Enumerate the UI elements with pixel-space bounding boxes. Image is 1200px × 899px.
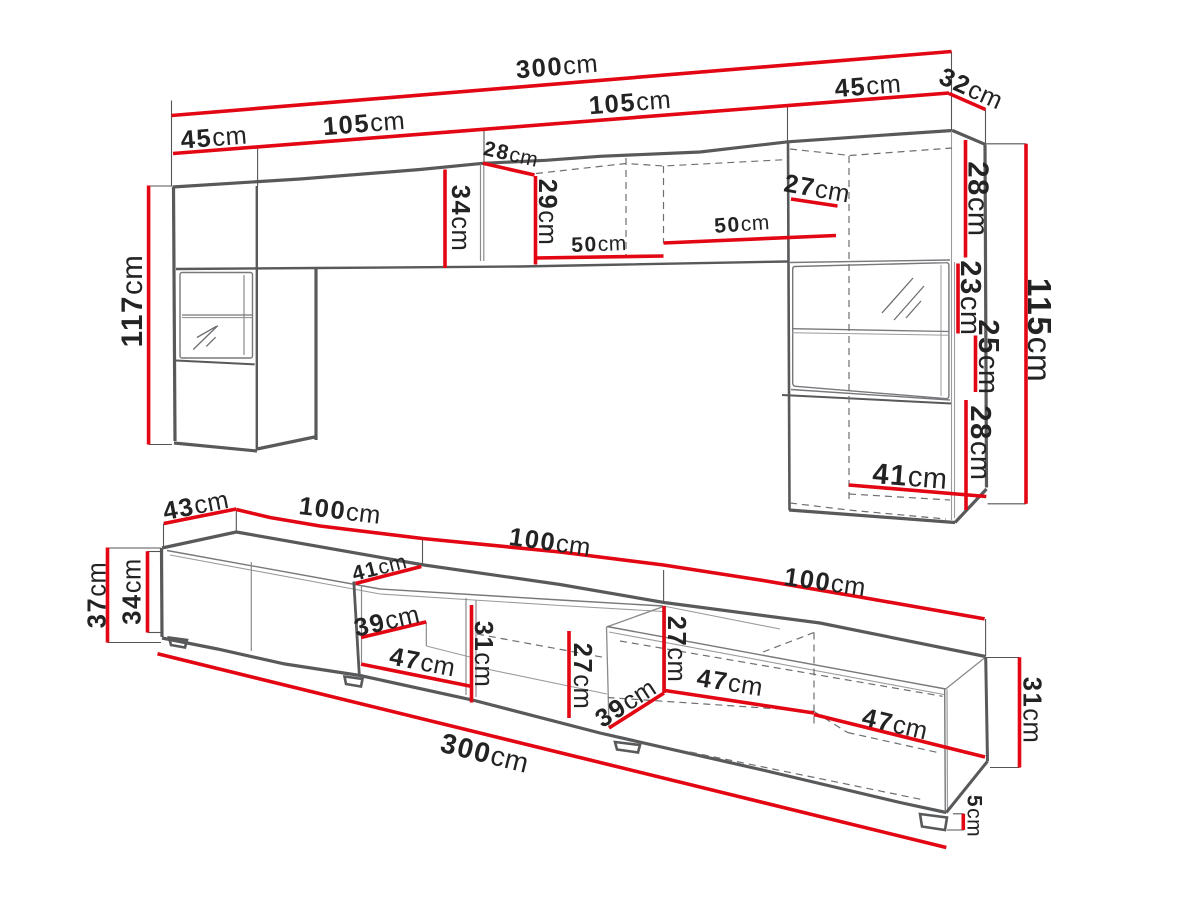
svg-text:115cm: 115cm [1021, 278, 1058, 383]
svg-text:50cm: 50cm [713, 211, 770, 238]
svg-text:27cm: 27cm [782, 169, 852, 208]
svg-text:32cm: 32cm [935, 63, 1007, 116]
svg-text:100cm: 100cm [507, 523, 592, 562]
svg-text:25cm: 25cm [972, 319, 1004, 394]
svg-text:29cm: 29cm [533, 179, 561, 246]
svg-text:50cm: 50cm [571, 232, 627, 257]
svg-text:45cm: 45cm [834, 70, 903, 103]
svg-text:31cm: 31cm [1018, 677, 1046, 744]
svg-text:100cm: 100cm [782, 563, 867, 602]
svg-text:117cm: 117cm [116, 255, 149, 348]
svg-text:37cm: 37cm [84, 562, 112, 629]
svg-text:27cm: 27cm [568, 643, 596, 710]
svg-text:45cm: 45cm [180, 121, 249, 154]
svg-text:28cm: 28cm [964, 405, 996, 480]
svg-text:47cm: 47cm [387, 642, 458, 682]
svg-text:41cm: 41cm [871, 458, 948, 496]
svg-text:47cm: 47cm [859, 703, 930, 745]
svg-text:31cm: 31cm [469, 621, 497, 688]
svg-text:300cm: 300cm [515, 50, 599, 85]
svg-text:39cm: 39cm [590, 674, 661, 734]
svg-text:34cm: 34cm [446, 185, 474, 252]
svg-text:28cm: 28cm [962, 161, 994, 236]
svg-text:27cm: 27cm [662, 616, 690, 683]
svg-text:34cm: 34cm [119, 558, 147, 625]
svg-text:43cm: 43cm [161, 486, 232, 526]
svg-text:5cm: 5cm [963, 795, 986, 837]
